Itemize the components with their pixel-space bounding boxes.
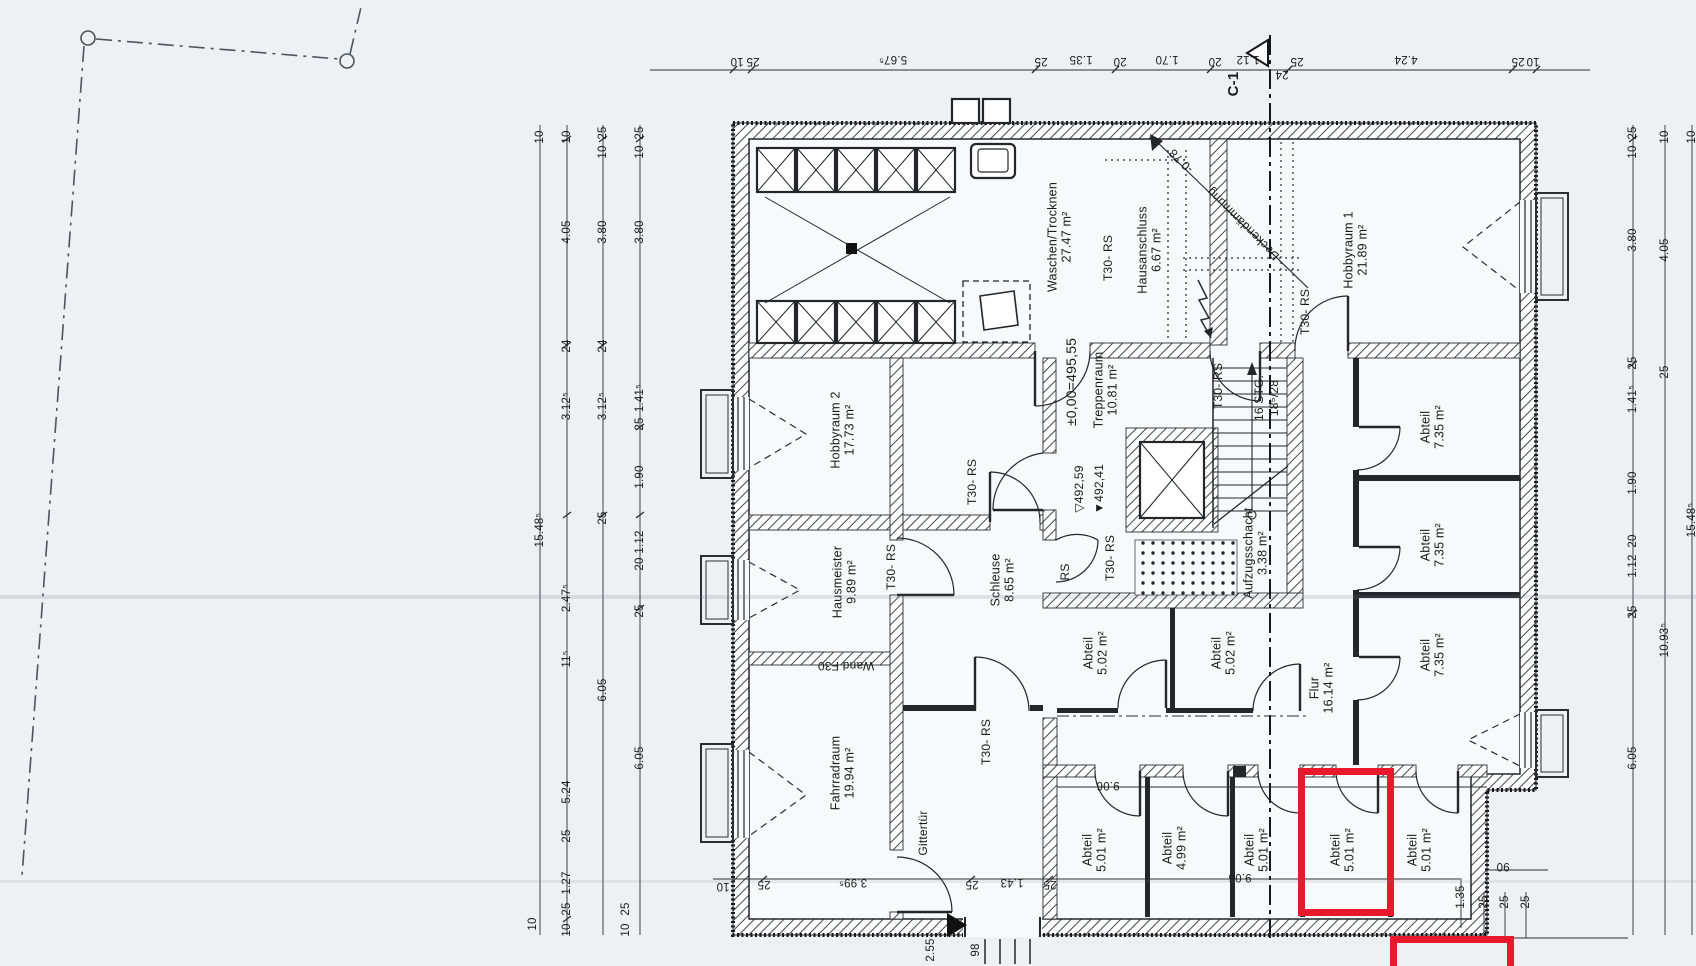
dimension-label: 20 [1113, 55, 1126, 67]
dimension-label: 6.05 [597, 678, 609, 701]
dimension-label: 25 [1499, 895, 1511, 908]
room-label: Abteil4.99 m² [1162, 826, 1189, 870]
dimension-label: 3.12⁵ [597, 392, 609, 420]
dimension-label: 1.70 [1155, 53, 1178, 65]
dimension-label: 25 [1627, 605, 1639, 618]
room-name: Abteil [1420, 405, 1434, 449]
room-area: 7.35 m² [1433, 633, 1447, 677]
highlight-box-bottom [1390, 936, 1514, 966]
dimension-label: 24 [597, 339, 609, 352]
dimension-label: 1.90 [634, 465, 646, 488]
dimension-label: 20 [634, 557, 646, 570]
dimension-label: 1.41⁵ [634, 384, 646, 412]
floorplan-linework [0, 0, 1696, 966]
dimension-label: 25 [1627, 126, 1639, 139]
room-area: 3.38 m² [1256, 507, 1270, 598]
dimension-label: 20 [1208, 55, 1221, 67]
dimension-label: 25 [1511, 55, 1524, 67]
room-area: 5.01 m² [1420, 828, 1434, 872]
dimension-label: 25 [597, 126, 609, 139]
dimension-label: 10 [1686, 130, 1696, 143]
room-name: Waschen/Trocknen [1047, 182, 1061, 292]
room-area: 17.73 m² [843, 391, 857, 468]
dimension-label: 4.24 [1394, 53, 1417, 65]
dimension-label: 20 [1627, 534, 1639, 547]
dimension-label: 10 [1659, 130, 1671, 143]
room-name: Abteil [1420, 633, 1434, 677]
annotation-label: ±0,00=495,55 [1065, 338, 1077, 426]
door-label: RS [1059, 563, 1071, 580]
dimension-label: 10 [561, 923, 573, 936]
room-name: Abteil [1083, 631, 1097, 675]
dimension-label: 3.80 [634, 220, 646, 243]
room-name: Abteil [1407, 828, 1421, 872]
annotation-label: ▽492,59 [1073, 465, 1085, 512]
dimension-label: 10 [1627, 145, 1639, 158]
dimension-label: 25 [746, 55, 759, 67]
door-label: T30- RS [1299, 289, 1311, 335]
room-name: Hausmeister [832, 546, 846, 618]
room-label: Fahrradraum19.94 m² [830, 736, 857, 810]
room-name: Hobbyraum 1 [1343, 211, 1357, 288]
landing-dotted-floor [1135, 540, 1237, 595]
room-area: 5.01 m² [1095, 828, 1109, 872]
dimension-label: 25 [1520, 895, 1532, 908]
dimension-label: 6.05 [1627, 746, 1639, 769]
dimension-label: 1.41⁵ [1627, 385, 1639, 413]
dimension-label: 25 [757, 878, 770, 890]
room-area: 9.89 m² [845, 546, 859, 618]
dimension-label: 3.12⁵ [561, 392, 573, 420]
room-name: Treppenraum [1093, 352, 1107, 429]
dimension-label: 3.80 [1627, 228, 1639, 251]
room-area: 7.35 m² [1433, 405, 1447, 449]
room-area: 21.89 m² [1356, 211, 1370, 288]
room-area: 6.67 m² [1150, 206, 1164, 293]
room-label: Aufzugsschacht3.38 m² [1243, 507, 1270, 598]
dimension-label: 25 [1478, 895, 1490, 908]
dimension-label: 1.12 [634, 530, 646, 553]
dimension-label: 90 [1496, 860, 1509, 872]
dimension-label: 25 [965, 878, 978, 890]
dimension-label: 25 [1043, 878, 1056, 890]
dimension-label: 10 [561, 130, 573, 143]
dimension-label: 25 [634, 417, 646, 430]
dimension-label: 4.05 [1659, 238, 1671, 261]
annotation-label: Wand F30 [818, 660, 875, 672]
room-area: 19.94 m² [843, 736, 857, 810]
dimension-label: 11⁵ [561, 650, 573, 667]
dimension-label: 25 [561, 902, 573, 915]
room-label: Abteil5.01 m² [1244, 828, 1271, 872]
dimension-label: 4.05 [561, 220, 573, 243]
dimension-label: 3.99⁵ [839, 876, 867, 888]
dimension-label: 15.48⁵ [534, 513, 546, 548]
dimension-label: 10 [716, 880, 729, 892]
room-label: Abteil7.35 m² [1420, 405, 1447, 449]
elevator [1140, 442, 1204, 518]
dimension-label: 98 [970, 943, 982, 956]
room-area: 8.65 m² [1003, 553, 1017, 606]
dimension-label: 1.35 [1455, 885, 1467, 908]
room-label: Abteil7.35 m² [1420, 523, 1447, 567]
dimension-label: 2.47⁵ [561, 584, 573, 612]
dimension-label: 1.90 [1627, 471, 1639, 494]
annotation-label: 16 STG. [1253, 375, 1265, 421]
door-label: T30- RS [966, 459, 978, 505]
room-area: 5.02 m² [1096, 631, 1110, 675]
annotation-label: ▼492,41 [1093, 464, 1105, 514]
dimension-label: 25 [1290, 55, 1303, 67]
dimension-label: 10 [527, 917, 539, 930]
room-name: Abteil [1244, 828, 1258, 872]
room-name: Hausanschluss [1137, 206, 1151, 293]
room-name: Aufzugsschacht [1243, 507, 1257, 598]
room-name: Hobbyraum 2 [830, 391, 844, 468]
dimension-label: 15.48⁵ [1686, 503, 1696, 538]
room-label: Hausmeister9.89 m² [832, 546, 859, 618]
property-boundary-line [22, 3, 362, 876]
dimension-label: 25 [634, 126, 646, 139]
dimension-label: 2.55 [925, 938, 937, 961]
room-area: 4.99 m² [1175, 826, 1189, 870]
dimension-label: 1.43 [1000, 876, 1023, 888]
highlight-box-abteil [1298, 768, 1394, 916]
dimension-label: 10 [620, 923, 632, 936]
dimension-label: 1.12 [1627, 554, 1639, 577]
dimension-label: 25 [597, 511, 609, 524]
room-area: 5.02 m² [1224, 631, 1238, 675]
room-label: Flur16.14 m² [1309, 663, 1336, 714]
room-label: Hobbyraum 121.89 m² [1343, 211, 1370, 288]
room-label: Abteil5.01 m² [1082, 828, 1109, 872]
room-label: Hausanschluss6.67 m² [1137, 206, 1164, 293]
dimension-label: 1.35 [1069, 53, 1092, 65]
door-label: T30- RS [1212, 363, 1224, 409]
room-area: 27.47 m² [1060, 182, 1074, 292]
door-label: T30- RS [1104, 535, 1116, 581]
door-label: T30- RS [980, 719, 992, 765]
room-label: Schleuse8.65 m² [990, 553, 1017, 606]
room-label: Treppenraum10.81 m² [1093, 352, 1120, 429]
room-label: Abteil5.02 m² [1211, 631, 1238, 675]
room-name: Abteil [1162, 826, 1176, 870]
dimension-label: 25 [1659, 365, 1671, 378]
dimension-label: 25 [620, 902, 632, 915]
door-label: T30- RS [885, 544, 897, 590]
room-name: Schleuse [990, 553, 1004, 606]
dimension-label: 25 [561, 829, 573, 842]
dimension-label: 6.05 [634, 746, 646, 769]
dimension-label: 25 [1034, 55, 1047, 67]
dimension-label: 10 [597, 145, 609, 158]
dimension-label: 10 [534, 130, 546, 143]
dimension-label: 10 [634, 145, 646, 158]
dimension-label: 9.06 [1228, 871, 1251, 883]
room-label: Hobbyraum 217.73 m² [830, 391, 857, 468]
room-label: Abteil5.02 m² [1083, 631, 1110, 675]
dimension-label: 3.80 [597, 220, 609, 243]
floorplan-page: Waschen/Trocknen27.47 m²Hausanschluss6.6… [0, 0, 1696, 966]
dimension-label: 1.12 [1236, 53, 1259, 65]
room-name: Abteil [1082, 828, 1096, 872]
dimension-label: 25 [634, 604, 646, 617]
dimension-label: 10 [1526, 55, 1539, 67]
room-name: Fahrradraum [830, 736, 844, 810]
room-area: 7.35 m² [1433, 523, 1447, 567]
annotation-label: Gittertür [917, 810, 929, 855]
annotation-label: 18⁵/28 [1268, 380, 1280, 416]
dimension-label: 5.67⁵ [879, 53, 907, 65]
room-area: 5.01 m² [1257, 828, 1271, 872]
room-label: Abteil7.35 m² [1420, 633, 1447, 677]
room-label: Waschen/Trocknen27.47 m² [1047, 182, 1074, 292]
dimension-label: 1.27 [561, 871, 573, 894]
room-area: 16.14 m² [1322, 663, 1336, 714]
dimension-label: 25 [1627, 356, 1639, 369]
room-name: Flur [1309, 663, 1323, 714]
dimension-label: 24 [561, 339, 573, 352]
dimension-label: 9.06 [1096, 779, 1119, 791]
door-label: T30- RS [1102, 235, 1114, 281]
room-name: Abteil [1211, 631, 1225, 675]
dimension-label: 10 [730, 55, 743, 67]
dimension-label: 5.24 [561, 780, 573, 803]
room-name: Abteil [1420, 523, 1434, 567]
dimension-label: 10.93⁵ [1659, 623, 1671, 658]
room-area: 10.81 m² [1106, 352, 1120, 429]
dimension-label: 24 [1275, 68, 1288, 80]
room-label: Abteil5.01 m² [1407, 828, 1434, 872]
section-label: C-1 [1228, 72, 1240, 97]
